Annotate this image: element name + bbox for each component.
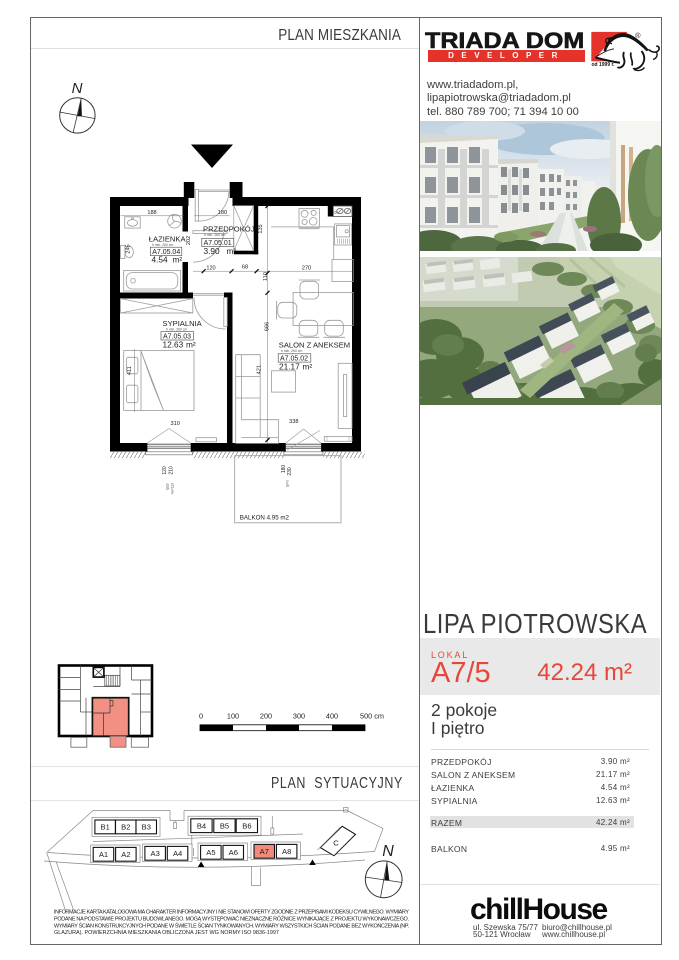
svg-text:B3: B3 [142, 823, 151, 832]
svg-text:500 cm: 500 cm [360, 712, 384, 721]
svg-text:A1: A1 [99, 850, 108, 859]
svg-text:h min. 260 cm: h min. 260 cm [166, 327, 187, 331]
svg-text:A3: A3 [151, 849, 160, 858]
svg-text:68: 68 [242, 265, 248, 271]
svg-text:0: 0 [199, 712, 203, 721]
svg-text:A4: A4 [173, 849, 182, 858]
svg-text:135: 135 [258, 224, 264, 233]
svg-text:h min. 260 cm: h min. 260 cm [281, 349, 302, 353]
svg-text:245: 245 [125, 244, 131, 253]
svg-text:h min. 260 cm: h min. 260 cm [152, 243, 173, 247]
svg-text:100: 100 [227, 712, 239, 721]
svg-text:421: 421 [257, 365, 263, 374]
svg-text:ho=110: ho=110 [171, 483, 175, 494]
svg-text:m²: m² [227, 246, 237, 256]
svg-text:GLAZURA). POWIERZCHNIA MIESZKA: GLAZURA). POWIERZCHNIA MIESZKANIA OBLICZ… [54, 930, 279, 936]
svg-text:411: 411 [127, 366, 133, 375]
svg-text:300: 300 [293, 712, 305, 721]
svg-text:202: 202 [186, 236, 192, 245]
svg-text:tp=0: tp=0 [285, 480, 289, 487]
svg-text:PODANE NA PODSTAWIE PROJEKTU B: PODANE NA PODSTAWIE PROJEKTU BUDOWLANEGO… [54, 915, 409, 922]
svg-text:A5: A5 [206, 848, 215, 857]
svg-text:INFORMACJE KARTA KATALOGOWA MA: INFORMACJE KARTA KATALOGOWA MA CHARAKTER… [54, 910, 409, 916]
svg-text:338: 338 [289, 419, 298, 425]
svg-text:N: N [72, 80, 83, 97]
svg-text:3.90: 3.90 [204, 246, 221, 256]
svg-text:120: 120 [162, 466, 168, 475]
svg-text:B5: B5 [220, 822, 229, 831]
svg-text:400: 400 [326, 712, 338, 721]
svg-text:21.17: 21.17 [279, 362, 300, 372]
svg-text:BALKON 4.95 m2: BALKON 4.95 m2 [240, 515, 290, 522]
svg-text:m²: m² [173, 254, 183, 264]
svg-text:tp20: tp20 [166, 483, 170, 490]
svg-text:310: 310 [171, 421, 180, 427]
svg-text:180: 180 [281, 465, 287, 474]
svg-text:B4: B4 [197, 822, 206, 831]
svg-text:180: 180 [218, 210, 227, 216]
svg-text:h min. 260 cm: h min. 260 cm [204, 233, 225, 237]
svg-text:230: 230 [287, 467, 293, 476]
svg-text:C: C [333, 839, 339, 848]
svg-text:N: N [382, 843, 394, 860]
svg-text:666: 666 [264, 322, 270, 331]
svg-text:210: 210 [168, 466, 174, 475]
svg-text:WYMIARY ŚCIAN KONSTRUKCYJNYCH: WYMIARY ŚCIAN KONSTRUKCYJNYCH PODANE W Ś… [54, 921, 409, 929]
svg-text:A6: A6 [229, 848, 238, 857]
svg-text:B6: B6 [242, 822, 251, 831]
svg-text:270: 270 [302, 266, 311, 272]
svg-text:m²: m² [303, 362, 313, 372]
svg-text:m²: m² [186, 340, 196, 350]
svg-text:200: 200 [260, 712, 272, 721]
svg-text:A7: A7 [260, 847, 269, 856]
svg-text:B2: B2 [121, 823, 130, 832]
svg-text:188: 188 [147, 210, 156, 216]
svg-text:120: 120 [206, 266, 215, 272]
svg-text:4.54: 4.54 [152, 254, 169, 264]
svg-text:110: 110 [263, 272, 269, 281]
svg-text:A2: A2 [121, 850, 130, 859]
svg-text:B1: B1 [101, 823, 110, 832]
svg-text:12.63: 12.63 [163, 340, 184, 350]
svg-text:A8: A8 [282, 847, 291, 856]
